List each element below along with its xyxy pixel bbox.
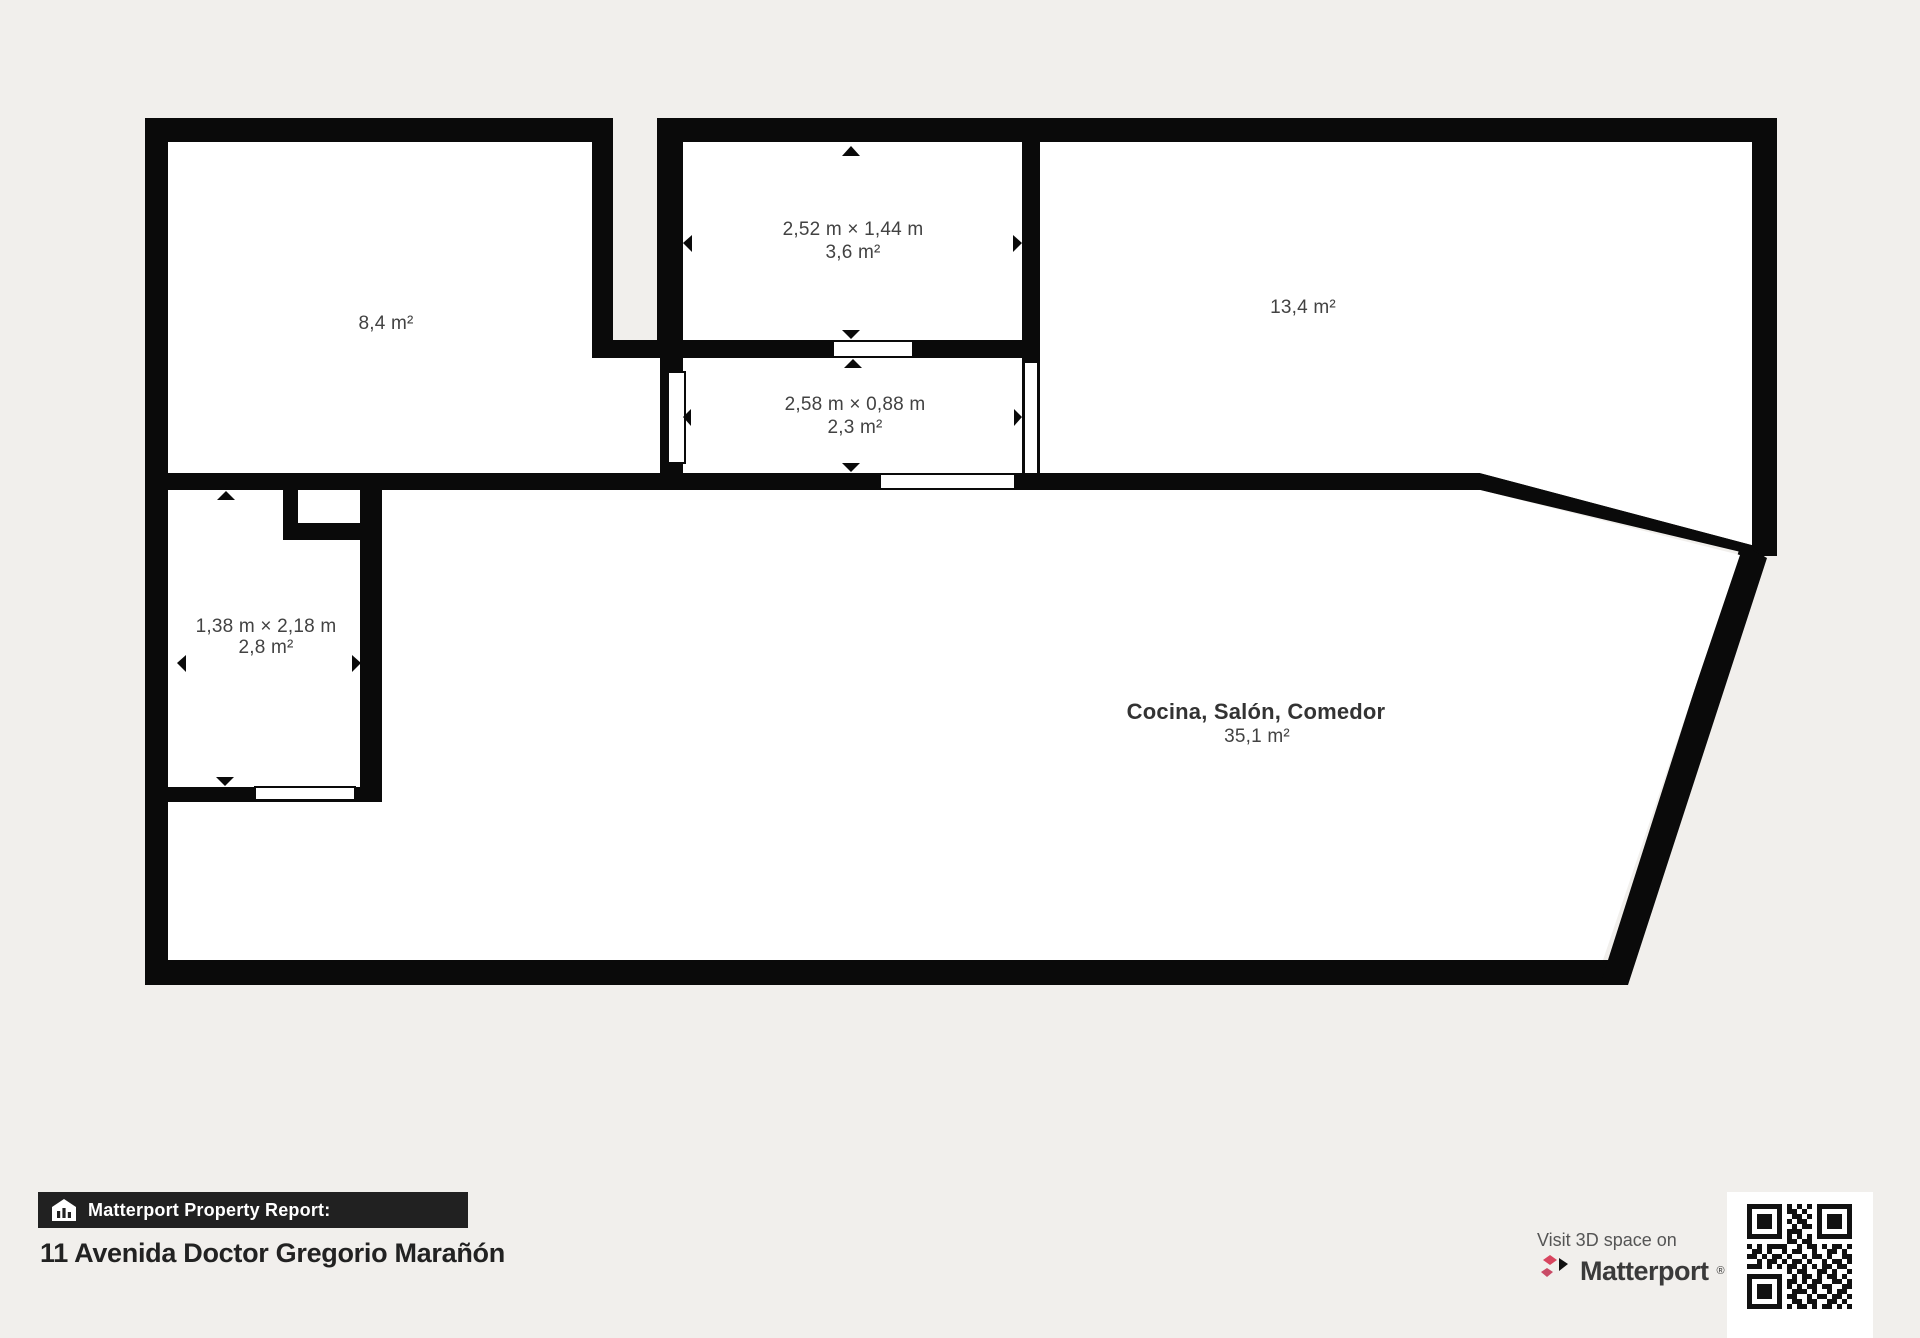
- room-84-floor: [168, 142, 660, 473]
- wall-left: [145, 118, 168, 985]
- room-floors: [168, 142, 1752, 960]
- qr-code-panel[interactable]: [1727, 1192, 1873, 1338]
- room-36-dims-label: 2,52 m × 1,44 m: [783, 219, 924, 241]
- room-cocina-area-label: 35,1 m²: [1224, 726, 1290, 748]
- brand-registered-mark: ®: [1717, 1265, 1725, 1277]
- door-room28-bottom: [255, 787, 355, 800]
- brand-name-text: Matterport: [1580, 1256, 1709, 1287]
- wall-bottom: [145, 960, 1618, 985]
- visit-3d-text: Visit 3D space on: [1537, 1230, 1707, 1251]
- room-28-area-label: 2,8 m²: [238, 637, 293, 659]
- wall-horizontal-band: [145, 473, 1480, 490]
- report-title: Matterport Property Report:: [88, 1200, 330, 1221]
- door-room36-bottom: [833, 341, 913, 357]
- qr-code: [1747, 1204, 1852, 1309]
- room-36-floor: [683, 142, 1022, 340]
- room-cocina-floor: [168, 490, 1740, 960]
- matterport-logo-icon: [1538, 1254, 1572, 1288]
- wall-right: [1752, 118, 1777, 556]
- room-23-dims-label: 2,58 m × 0,88 m: [785, 394, 926, 416]
- room-28-dims-label: 1,38 m × 2,18 m: [196, 616, 337, 638]
- report-header-bar: Matterport Property Report:: [38, 1192, 468, 1228]
- door-hall-left: [668, 372, 685, 463]
- room-36-area-label: 3,6 m²: [825, 242, 880, 264]
- door-hall-bottom: [880, 474, 1015, 489]
- wall-notch-bottom: [283, 523, 382, 540]
- room-cocina-name-label: Cocina, Salón, Comedor: [1127, 699, 1386, 725]
- room-134-area-label: 13,4 m²: [1270, 297, 1336, 319]
- property-address: 11 Avenida Doctor Gregorio Marañón: [40, 1238, 505, 1269]
- door-hall-right: [1024, 362, 1038, 474]
- wall-middle-bottom: [587, 340, 1040, 358]
- wall-top-left: [145, 118, 613, 142]
- wall-slot-left: [592, 118, 613, 358]
- matterport-brand[interactable]: Matterport ®: [1538, 1254, 1725, 1288]
- shaft-notch-floor: [298, 490, 360, 523]
- room-84-area-label: 8,4 m²: [358, 313, 413, 335]
- wall-top-right: [657, 118, 1777, 142]
- room-23-area-label: 2,3 m²: [827, 417, 882, 439]
- house-icon: [52, 1199, 76, 1221]
